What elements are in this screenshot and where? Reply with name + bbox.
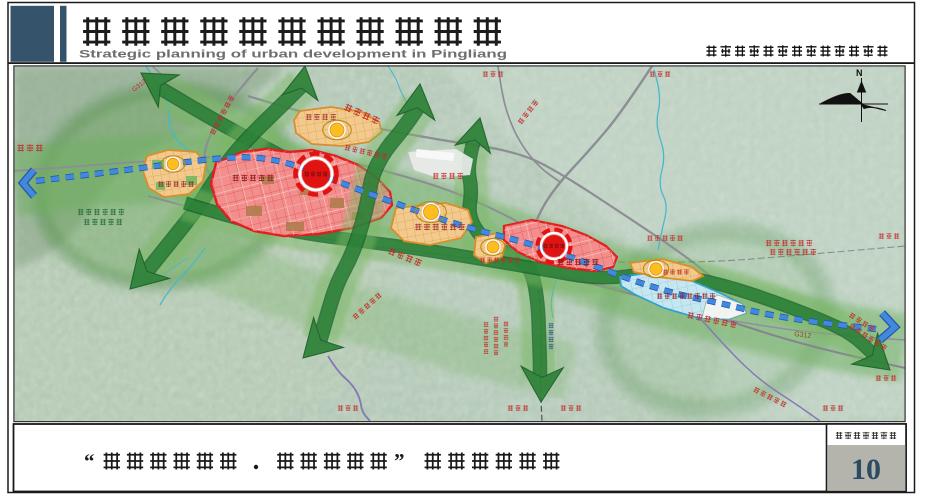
- svg-text:”: ”: [394, 449, 405, 473]
- svg-text:“: “: [84, 449, 95, 473]
- svg-text:N: N: [856, 68, 863, 78]
- svg-text:Strategic planning of urban de: Strategic planning of urban development …: [79, 49, 507, 61]
- svg-text:10: 10: [851, 453, 881, 486]
